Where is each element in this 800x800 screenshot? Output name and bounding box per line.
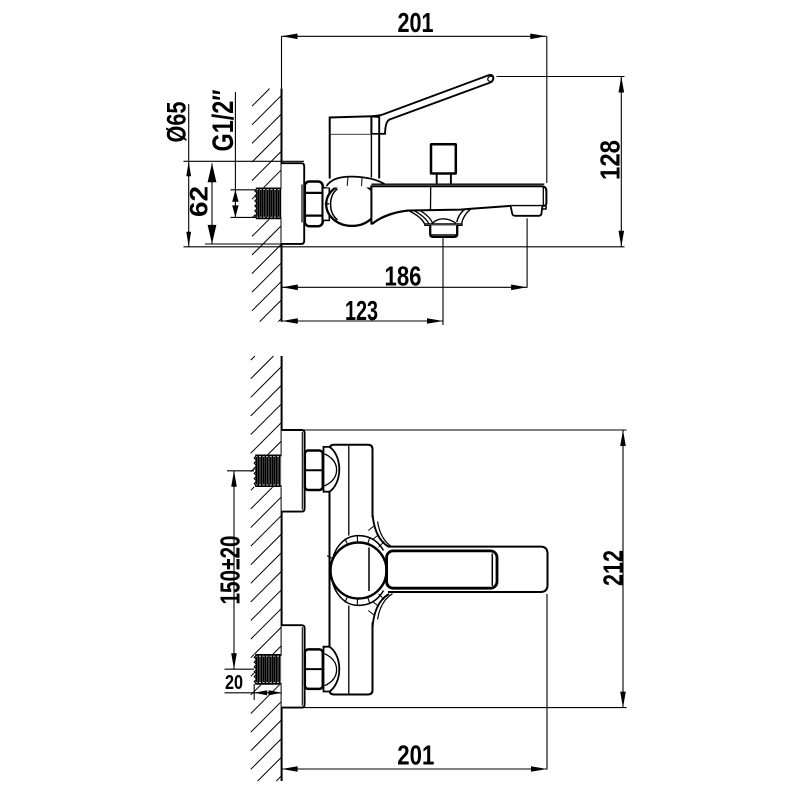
svg-text:G1/2″: G1/2″ [207,90,240,152]
svg-text:Ø65: Ø65 [162,102,192,143]
svg-text:62: 62 [186,186,214,217]
svg-text:123: 123 [345,295,378,326]
svg-text:150±20: 150±20 [215,536,246,605]
svg-text:201: 201 [398,7,434,38]
svg-text:212: 212 [598,550,629,586]
svg-text:128: 128 [595,140,626,180]
svg-text:20: 20 [225,672,243,694]
svg-text:201: 201 [397,740,434,771]
svg-text:186: 186 [385,261,422,292]
